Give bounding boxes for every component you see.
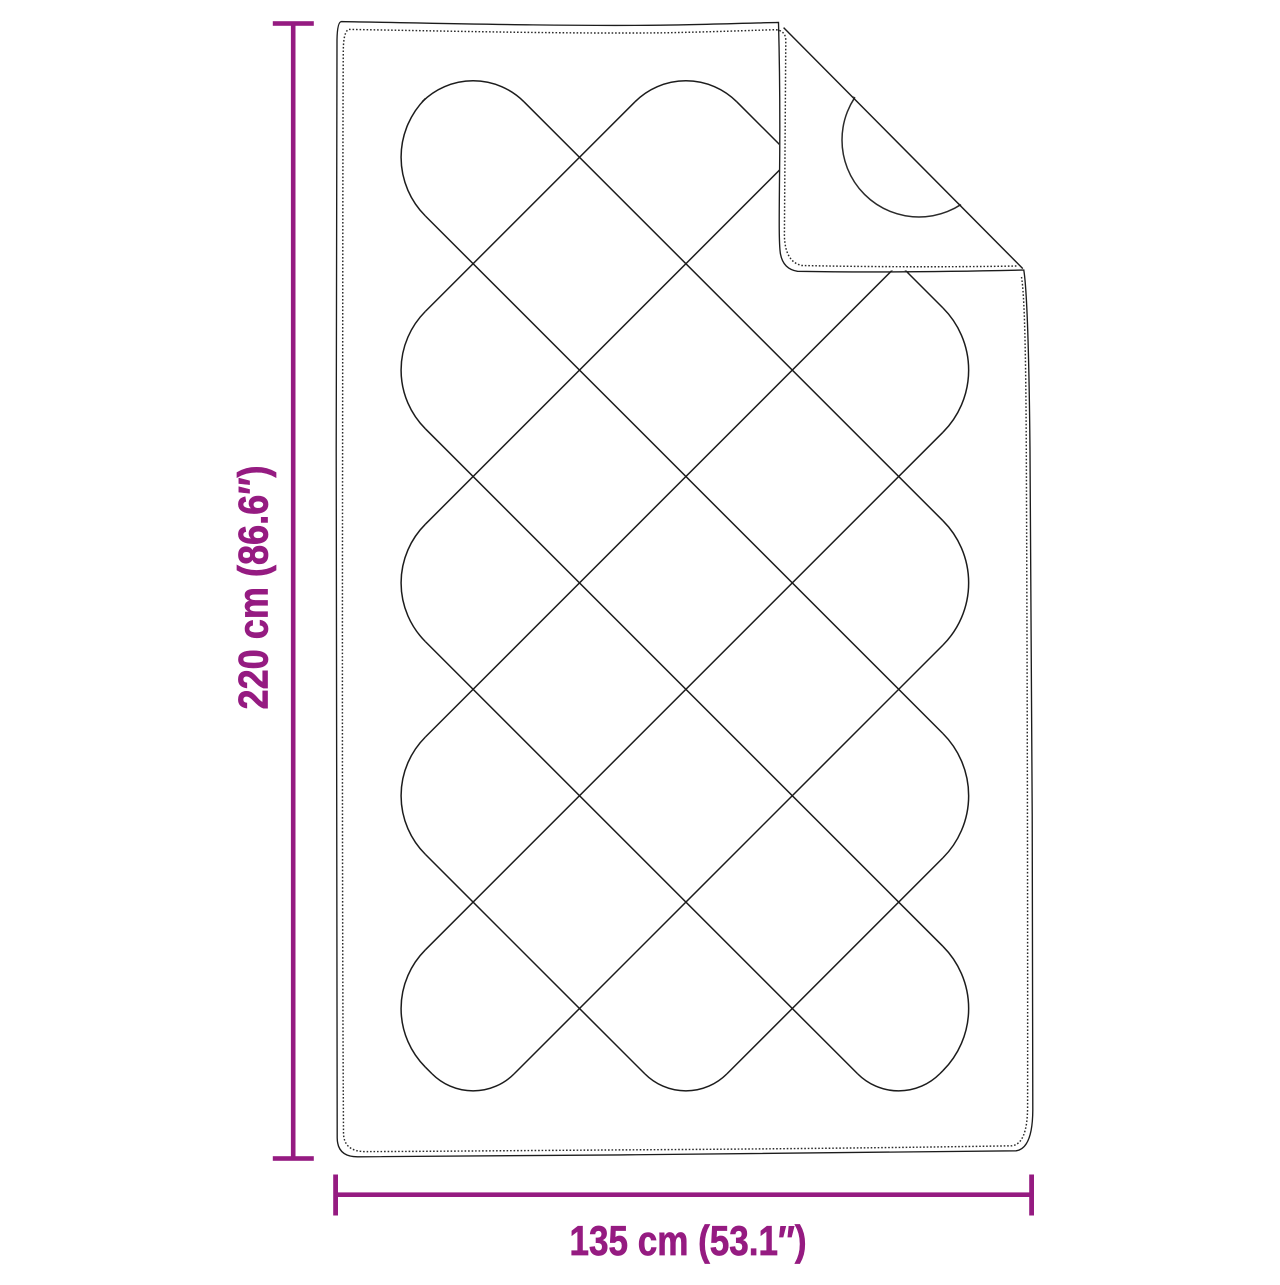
svg-text:135 cm (53.1″): 135 cm (53.1″)	[570, 1217, 807, 1264]
svg-text:220 cm (86.6″): 220 cm (86.6″)	[230, 466, 277, 710]
